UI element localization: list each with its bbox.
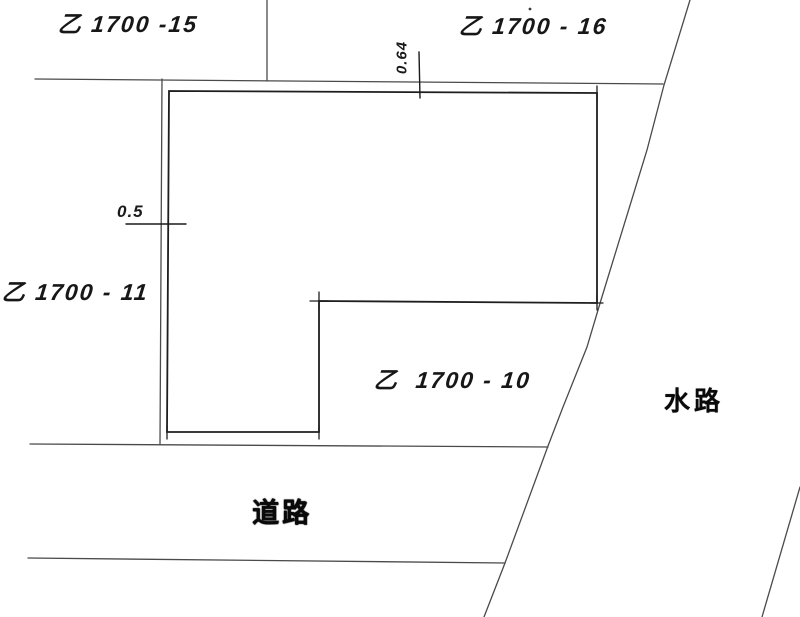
- road-label: 道路: [252, 500, 312, 527]
- left-boundary-line: [160, 79, 162, 444]
- top-boundary-line: [35, 79, 663, 84]
- waterway-right-boundary-line: [762, 487, 800, 617]
- parcel-label-1700-15: 乙 1700 -15: [57, 13, 200, 36]
- dimension-0-64: 0.64: [395, 37, 410, 79]
- cadastral-sketch: 乙 1700 -15 乙 1700 - 16 乙 1700 - 11 乙 170…: [0, 0, 800, 617]
- waterway-label: 水路: [664, 388, 724, 414]
- dim-tick-0-64: [419, 52, 420, 98]
- road-bottom-line: [28, 558, 505, 563]
- corner-tick-notch: [310, 292, 328, 309]
- parcel-label-1700-16: 乙 1700 - 16: [458, 15, 609, 38]
- parcel-label-1700-10: 乙 1700 - 10: [373, 369, 532, 392]
- dimension-0-5: 0.5: [117, 203, 144, 220]
- ink-dot: [529, 8, 532, 11]
- parcel-label-1700-11: 乙 1700 - 11: [1, 281, 150, 304]
- survey-line-drawing: [0, 0, 800, 617]
- road-top-line: [30, 444, 548, 447]
